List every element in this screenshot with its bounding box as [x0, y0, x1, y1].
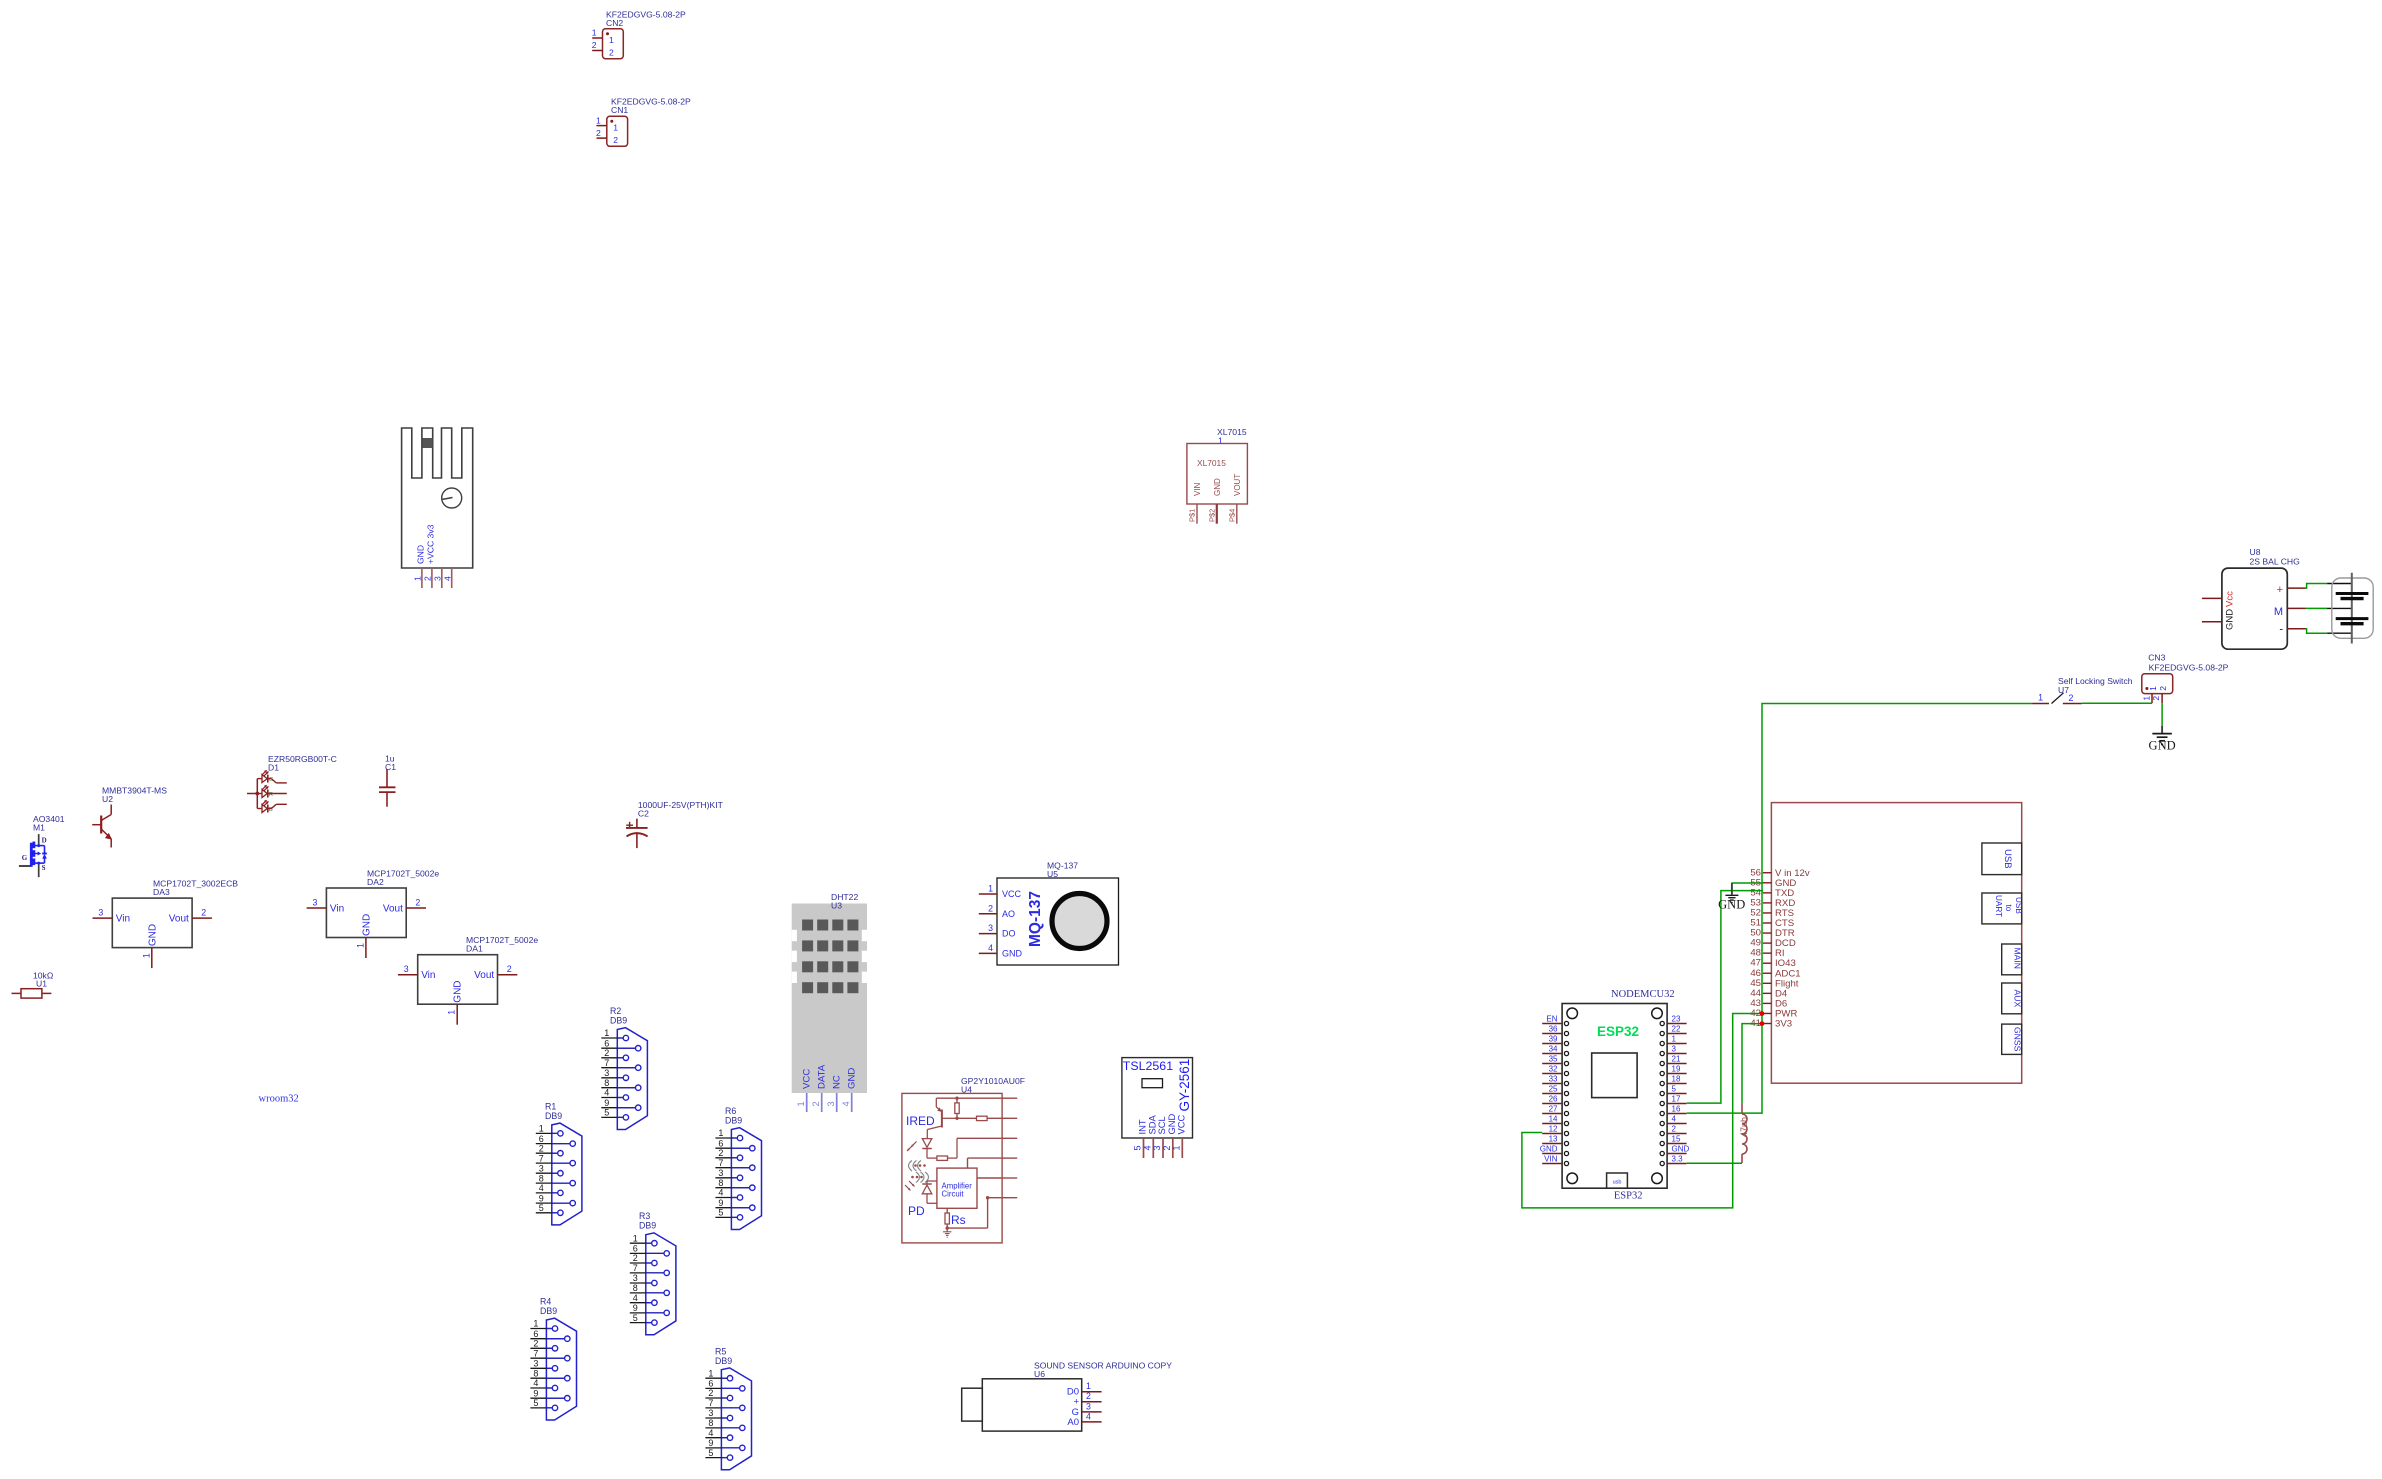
svg-text:9: 9: [533, 1388, 538, 1398]
svg-text:VCC: VCC: [1002, 889, 1022, 899]
svg-text:3: 3: [433, 576, 443, 581]
svg-text:3: 3: [98, 908, 103, 918]
svg-text:2: 2: [718, 1148, 723, 1158]
svg-text:GND: GND: [1213, 478, 1222, 496]
svg-text:13: 13: [1549, 1135, 1558, 1144]
svg-text:2: 2: [596, 128, 601, 138]
svg-text:2: 2: [539, 1143, 544, 1153]
svg-text:5: 5: [633, 1313, 638, 1323]
svg-text:9: 9: [718, 1198, 723, 1208]
svg-text:DB9: DB9: [540, 1306, 557, 1316]
svg-text:VCC: VCC: [802, 1069, 813, 1089]
svg-text:5: 5: [533, 1398, 538, 1408]
svg-text:4: 4: [1142, 1145, 1152, 1150]
svg-text:33: 33: [1549, 1075, 1558, 1084]
svg-text:R4: R4: [540, 1297, 551, 1307]
svg-text:2: 2: [2069, 693, 2074, 703]
svg-text:GND: GND: [453, 980, 464, 1002]
svg-text:GND: GND: [2149, 739, 2176, 753]
svg-text:8: 8: [718, 1178, 723, 1188]
svg-text:5: 5: [604, 1108, 609, 1118]
svg-text:2: 2: [708, 1388, 713, 1398]
svg-text:7: 7: [539, 1153, 544, 1163]
svg-text:4: 4: [533, 1378, 538, 1388]
svg-text:-: -: [2279, 624, 2283, 636]
svg-text:D1: D1: [268, 763, 279, 773]
svg-text:SOUND SENSOR ARDUINO COPY: SOUND SENSOR ARDUINO COPY: [1034, 1361, 1172, 1371]
svg-text:4: 4: [1672, 1115, 1677, 1124]
svg-text:2: 2: [201, 908, 206, 918]
svg-text:R3: R3: [639, 1211, 650, 1221]
svg-text:ESP32: ESP32: [1614, 1191, 1643, 1202]
svg-text:5: 5: [708, 1448, 713, 1458]
svg-text:DB9: DB9: [715, 1356, 732, 1366]
svg-text:to: to: [2004, 905, 2013, 912]
svg-text:8: 8: [539, 1173, 544, 1183]
svg-text:DATA: DATA: [817, 1064, 828, 1089]
svg-text:1: 1: [604, 1028, 609, 1038]
svg-text:+VCC 3v3: +VCC 3v3: [426, 524, 436, 564]
svg-text:3: 3: [988, 923, 993, 933]
svg-text:3: 3: [1672, 1045, 1677, 1054]
svg-text:1: 1: [596, 115, 601, 125]
svg-text:7: 7: [718, 1158, 723, 1168]
svg-text:VOUT: VOUT: [1233, 474, 1242, 496]
svg-text:U3: U3: [831, 901, 842, 911]
svg-text:P$2: P$2: [1207, 509, 1216, 522]
svg-text:39: 39: [1549, 1035, 1558, 1044]
svg-text:12: 12: [1549, 1125, 1558, 1134]
svg-text:4: 4: [1086, 1411, 1091, 1421]
svg-text:9: 9: [633, 1303, 638, 1313]
svg-text:2: 2: [988, 903, 993, 913]
svg-text:3: 3: [1152, 1145, 1162, 1150]
svg-text:9: 9: [708, 1438, 713, 1448]
svg-text:8: 8: [633, 1283, 638, 1293]
svg-text:Vout: Vout: [474, 970, 494, 981]
svg-text:GND: GND: [1002, 948, 1023, 958]
svg-text:4: 4: [539, 1183, 544, 1193]
svg-text:18: 18: [1672, 1075, 1681, 1084]
svg-text:R6: R6: [725, 1106, 736, 1116]
svg-text:17: 17: [1672, 1095, 1681, 1104]
svg-text:6: 6: [539, 1134, 544, 1144]
svg-text:3: 3: [404, 964, 409, 974]
svg-text:2: 2: [592, 40, 597, 50]
svg-text:USB: USB: [2002, 849, 2013, 869]
svg-text:22: 22: [1672, 1025, 1681, 1034]
svg-text:6: 6: [708, 1379, 713, 1389]
svg-text:3: 3: [312, 898, 317, 908]
svg-text:AO: AO: [1002, 909, 1015, 919]
svg-text:3V3: 3V3: [1775, 1019, 1792, 1030]
svg-text:8: 8: [604, 1078, 609, 1088]
svg-text:IRED: IRED: [906, 1114, 935, 1128]
svg-text:1: 1: [2142, 696, 2152, 701]
svg-text:VIN: VIN: [1193, 482, 1202, 496]
svg-text:GND: GND: [147, 924, 158, 946]
svg-text:1: 1: [796, 1101, 806, 1106]
svg-text:NODEMCU32: NODEMCU32: [1611, 989, 1675, 1000]
svg-text:2: 2: [811, 1101, 821, 1106]
svg-text:2: 2: [2151, 696, 2161, 701]
svg-text:DA2: DA2: [367, 877, 384, 887]
svg-text:2: 2: [415, 898, 420, 908]
svg-text:R2: R2: [610, 1006, 621, 1016]
svg-text:2: 2: [1086, 1391, 1091, 1401]
svg-text:usb: usb: [1613, 1180, 1622, 1186]
svg-text:TSL2561: TSL2561: [1123, 1059, 1173, 1073]
svg-text:S: S: [42, 864, 46, 872]
svg-text:14: 14: [1549, 1115, 1558, 1124]
svg-text:GND: GND: [2225, 609, 2236, 630]
svg-text:7: 7: [533, 1348, 538, 1358]
svg-text:2S BAL CHG: 2S BAL CHG: [2250, 557, 2301, 567]
svg-text:GND: GND: [361, 914, 372, 936]
svg-text:GND: GND: [1718, 897, 1745, 911]
svg-text:GND: GND: [1672, 1145, 1690, 1154]
svg-text:25: 25: [1549, 1085, 1558, 1094]
svg-text:ESP32: ESP32: [1597, 1024, 1639, 1039]
svg-text:4: 4: [443, 576, 453, 581]
svg-text:3: 3: [633, 1273, 638, 1283]
svg-text:MQ-137: MQ-137: [1027, 891, 1044, 947]
svg-text:GND: GND: [1540, 1145, 1558, 1154]
svg-text:Vin: Vin: [330, 904, 344, 915]
svg-text:4: 4: [604, 1088, 609, 1098]
svg-text:CN3: CN3: [2148, 653, 2165, 663]
svg-text:6: 6: [718, 1138, 723, 1148]
svg-text:1: 1: [1171, 1145, 1181, 1150]
svg-text:3: 3: [718, 1168, 723, 1178]
svg-text:R1: R1: [545, 1102, 556, 1112]
svg-text:GND: GND: [847, 1068, 858, 1089]
svg-text:34: 34: [1549, 1045, 1558, 1054]
svg-text:4: 4: [633, 1293, 638, 1303]
svg-text:7: 7: [604, 1058, 609, 1068]
svg-text:P$4: P$4: [1227, 509, 1236, 522]
svg-text:19: 19: [1672, 1065, 1681, 1074]
svg-text:Vout: Vout: [383, 904, 403, 915]
svg-text:2: 2: [2158, 686, 2168, 691]
svg-text:21: 21: [1672, 1055, 1681, 1064]
svg-text:UART: UART: [1994, 895, 2003, 917]
svg-text:4: 4: [708, 1428, 713, 1438]
svg-text:3: 3: [604, 1068, 609, 1078]
svg-text:XL7015: XL7015: [1197, 458, 1226, 468]
svg-text:DB9: DB9: [610, 1016, 627, 1026]
svg-text:wroom32: wroom32: [259, 1094, 299, 1105]
svg-text:2: 2: [533, 1339, 538, 1349]
svg-text:2: 2: [609, 47, 614, 57]
svg-text:1: 1: [533, 1319, 538, 1329]
svg-text:Vin: Vin: [421, 970, 435, 981]
svg-text:MAIN: MAIN: [2013, 948, 2023, 969]
svg-text:GNSS: GNSS: [2013, 1027, 2023, 1052]
svg-text:+: +: [2277, 584, 2283, 596]
svg-text:1: 1: [447, 1010, 457, 1015]
svg-text:EN: EN: [1546, 1015, 1557, 1024]
svg-text:3.3: 3.3: [1672, 1155, 1684, 1164]
svg-text:23: 23: [1672, 1015, 1681, 1024]
svg-text:M1: M1: [33, 823, 45, 833]
svg-text:3: 3: [539, 1163, 544, 1173]
svg-text:R5: R5: [715, 1347, 726, 1357]
svg-text:36: 36: [1549, 1025, 1558, 1034]
svg-text:USB: USB: [2014, 897, 2023, 914]
svg-text:8: 8: [708, 1418, 713, 1428]
svg-text:DA1: DA1: [466, 944, 483, 954]
svg-text:1000UF-25V(PTH)KIT: 1000UF-25V(PTH)KIT: [638, 800, 724, 810]
svg-text:DB9: DB9: [639, 1221, 656, 1231]
svg-text:VIN: VIN: [1544, 1155, 1558, 1164]
svg-text:Vin: Vin: [116, 914, 130, 925]
svg-text:1: 1: [413, 576, 423, 581]
svg-text:2: 2: [604, 1048, 609, 1058]
svg-text:3: 3: [1086, 1401, 1091, 1411]
svg-text:15: 15: [1672, 1135, 1681, 1144]
svg-text:D: D: [42, 837, 47, 845]
svg-text:1: 1: [613, 123, 618, 133]
svg-text:26: 26: [1549, 1095, 1558, 1104]
svg-text:9: 9: [604, 1098, 609, 1108]
svg-text:U2: U2: [102, 794, 113, 804]
svg-text:DB9: DB9: [725, 1116, 742, 1126]
svg-text:2: 2: [423, 576, 433, 581]
svg-text:32: 32: [1549, 1065, 1558, 1074]
svg-text:27: 27: [1549, 1105, 1558, 1114]
svg-text:4: 4: [841, 1101, 851, 1106]
svg-text:1: 1: [2148, 686, 2158, 691]
svg-text:DO: DO: [1002, 929, 1016, 939]
svg-text:U8: U8: [2250, 547, 2261, 557]
svg-text:Vout: Vout: [169, 914, 189, 925]
svg-text:6: 6: [633, 1244, 638, 1254]
svg-text:6: 6: [604, 1038, 609, 1048]
svg-text:3: 3: [708, 1408, 713, 1418]
svg-text:6: 6: [533, 1329, 538, 1339]
svg-text:1: 1: [2038, 693, 2043, 703]
svg-text:VCC: VCC: [1176, 1114, 1187, 1134]
svg-text:1: 1: [141, 953, 151, 958]
svg-text:5: 5: [1133, 1145, 1143, 1150]
svg-text:M: M: [2274, 606, 2283, 618]
svg-text:5: 5: [1672, 1085, 1677, 1094]
svg-text:35: 35: [1549, 1055, 1558, 1064]
svg-text:1: 1: [988, 884, 993, 894]
svg-text:3: 3: [826, 1101, 836, 1106]
svg-text:1: 1: [592, 28, 597, 38]
svg-text:GY-2561: GY-2561: [1177, 1059, 1192, 1112]
svg-text:Self Locking Switch: Self Locking Switch: [2058, 676, 2133, 686]
svg-text:3: 3: [533, 1359, 538, 1369]
svg-text:Rs: Rs: [951, 1213, 966, 1227]
svg-text:4: 4: [988, 943, 993, 953]
svg-text:GND: GND: [416, 545, 426, 564]
svg-text:5: 5: [718, 1208, 723, 1218]
svg-text:7: 7: [633, 1263, 638, 1273]
svg-text:8: 8: [533, 1368, 538, 1378]
svg-text:AUX: AUX: [2013, 990, 2023, 1008]
svg-text:PD: PD: [908, 1204, 925, 1218]
svg-text:5: 5: [539, 1203, 544, 1213]
svg-text:1: 1: [355, 943, 365, 948]
svg-text:G: G: [22, 854, 28, 862]
svg-text:NC: NC: [832, 1075, 843, 1089]
svg-text:Vcc: Vcc: [2225, 591, 2236, 607]
svg-text:16: 16: [1672, 1105, 1681, 1114]
svg-text:DA3: DA3: [153, 887, 170, 897]
svg-text:2: 2: [507, 964, 512, 974]
svg-text:1: 1: [718, 1128, 723, 1138]
svg-text:DB9: DB9: [545, 1111, 562, 1121]
svg-text:4: 4: [718, 1188, 723, 1198]
svg-text:7: 7: [708, 1398, 713, 1408]
svg-text:2: 2: [1672, 1125, 1677, 1134]
svg-text:1: 1: [633, 1233, 638, 1243]
svg-text:2: 2: [1162, 1145, 1172, 1150]
svg-text:1: 1: [708, 1368, 713, 1378]
svg-text:2: 2: [613, 135, 618, 145]
svg-text:U6: U6: [1034, 1369, 1045, 1379]
svg-text:1: 1: [539, 1124, 544, 1134]
svg-text:A0: A0: [1067, 1417, 1079, 1428]
svg-text:CN2: CN2: [606, 18, 623, 28]
svg-text:KF2EDGVG-5.08-2P: KF2EDGVG-5.08-2P: [2149, 662, 2229, 672]
svg-text:Circuit: Circuit: [942, 1190, 965, 1199]
svg-text:CN1: CN1: [611, 105, 628, 115]
svg-text:1: 1: [609, 35, 614, 45]
svg-text:P$1: P$1: [1188, 509, 1197, 522]
svg-text:2: 2: [633, 1253, 638, 1263]
svg-text:1: 1: [1086, 1381, 1091, 1391]
svg-text:9: 9: [539, 1193, 544, 1203]
svg-text:1: 1: [1672, 1035, 1677, 1044]
svg-text:C2: C2: [638, 808, 649, 818]
svg-text:U1: U1: [36, 979, 47, 989]
svg-text:47uh: 47uh: [1739, 1117, 1749, 1137]
